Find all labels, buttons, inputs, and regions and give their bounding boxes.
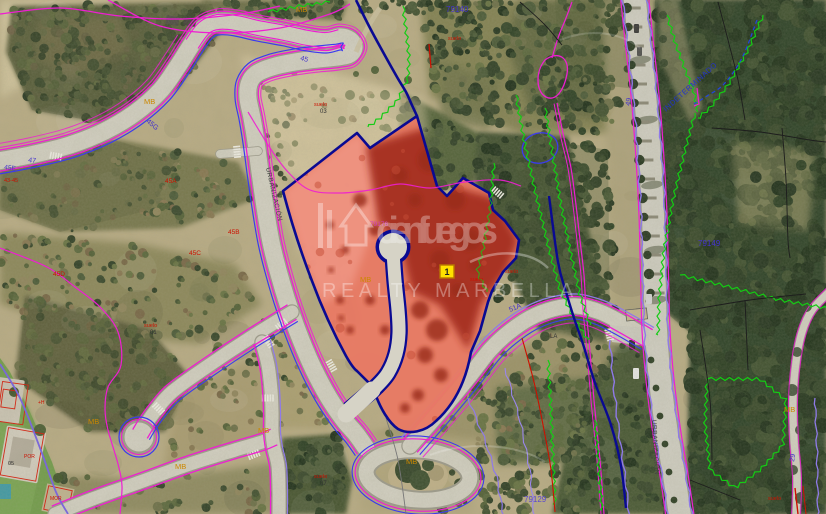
svg-text:45C: 45C: [189, 250, 201, 257]
svg-text:cienfuegos: cienfuegos: [376, 210, 498, 252]
svg-text:29: 29: [789, 453, 797, 462]
svg-text:45A: 45A: [165, 178, 177, 185]
svg-text:MB: MB: [175, 462, 186, 471]
svg-text:MB: MB: [88, 417, 99, 426]
svg-text:43-45: 43-45: [4, 178, 18, 184]
svg-text:03: 03: [320, 109, 327, 115]
svg-text:79129: 79129: [524, 495, 547, 504]
svg-text:79140: 79140: [446, 5, 469, 14]
svg-text:suelo: suelo: [314, 474, 327, 480]
svg-text:49: 49: [625, 97, 633, 106]
svg-text:05: 05: [8, 461, 14, 467]
svg-text:45D: 45D: [53, 271, 65, 278]
svg-text:01: 01: [150, 330, 157, 336]
svg-text:+H: +H: [38, 400, 45, 406]
svg-text:suelo: suelo: [314, 102, 327, 108]
svg-text:MB: MB: [144, 97, 155, 106]
svg-text:1: 1: [444, 267, 449, 277]
svg-text:MB: MB: [258, 426, 269, 435]
svg-text:LA: LA: [550, 334, 557, 340]
svg-text:45B: 45B: [228, 229, 240, 236]
svg-text:suelo: suelo: [768, 496, 781, 502]
svg-text:MB: MB: [406, 457, 417, 466]
svg-text:suelo: suelo: [144, 323, 157, 329]
svg-text:suelo: suelo: [448, 36, 461, 42]
svg-text:79149: 79149: [698, 239, 721, 248]
svg-text:POR: POR: [24, 454, 35, 460]
svg-text:07: 07: [320, 481, 327, 487]
svg-text:REALTY MARBELLA: REALTY MARBELLA: [322, 280, 578, 302]
svg-text:MB: MB: [296, 5, 307, 14]
svg-text:MB: MB: [784, 405, 795, 414]
svg-text:47: 47: [28, 157, 37, 165]
svg-text:suelo: suelo: [505, 269, 518, 275]
svg-text:MOR: MOR: [50, 496, 62, 502]
